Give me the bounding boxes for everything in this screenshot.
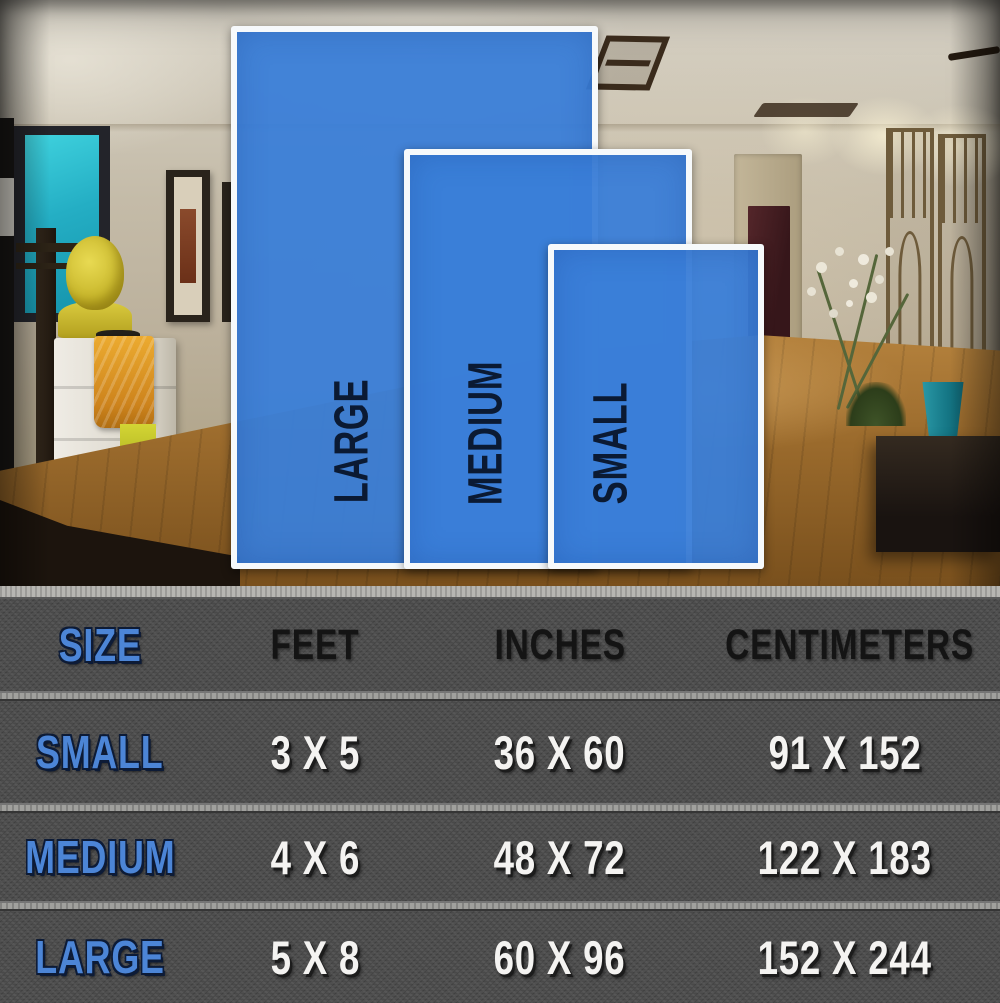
small-feet-value: 3 X 5 xyxy=(200,725,430,780)
size-table: SIZE FEET INCHES CENTIMETERS SMALL 3 X 5… xyxy=(0,586,1000,1003)
large-feet-value: 5 X 8 xyxy=(200,930,430,985)
row-separator xyxy=(0,803,1000,813)
rug-size-guide-graphic: LARGE MEDIUM SMALL SIZE FEET INCHES CENT… xyxy=(0,0,1000,1003)
small-centimeters-value: 91 X 152 xyxy=(690,725,1000,780)
small-size-label: SMALL xyxy=(0,725,200,779)
large-inches-value: 60 X 96 xyxy=(430,930,690,985)
size-rectangle-small: SMALL xyxy=(548,244,764,569)
header-size: SIZE xyxy=(0,618,200,672)
table-header-row: SIZE FEET INCHES CENTIMETERS xyxy=(0,599,1000,691)
row-separator xyxy=(0,901,1000,911)
row-separator xyxy=(0,691,1000,701)
header-inches: INCHES xyxy=(430,621,690,670)
header-centimeters: CENTIMETERS xyxy=(690,621,1000,670)
medium-centimeters-value: 122 X 183 xyxy=(690,830,1000,885)
header-feet: FEET xyxy=(200,621,430,670)
table-row-medium: MEDIUM 4 X 6 48 X 72 122 X 183 xyxy=(0,813,1000,901)
medium-inches-value: 48 X 72 xyxy=(430,830,690,885)
table-top-band xyxy=(0,586,1000,599)
size-rectangle-medium-label: MEDIUM xyxy=(459,361,514,505)
large-size-label: LARGE xyxy=(0,930,200,984)
medium-size-label: MEDIUM xyxy=(0,830,200,884)
table-row-small: SMALL 3 X 5 36 X 60 91 X 152 xyxy=(0,701,1000,803)
size-rectangle-small-label: SMALL xyxy=(584,382,639,505)
size-rectangle-large-label: LARGE xyxy=(325,379,380,504)
large-centimeters-value: 152 X 244 xyxy=(690,930,1000,985)
small-inches-value: 36 X 60 xyxy=(430,725,690,780)
table-row-large: LARGE 5 X 8 60 X 96 152 X 244 xyxy=(0,911,1000,1003)
medium-feet-value: 4 X 6 xyxy=(200,830,430,885)
